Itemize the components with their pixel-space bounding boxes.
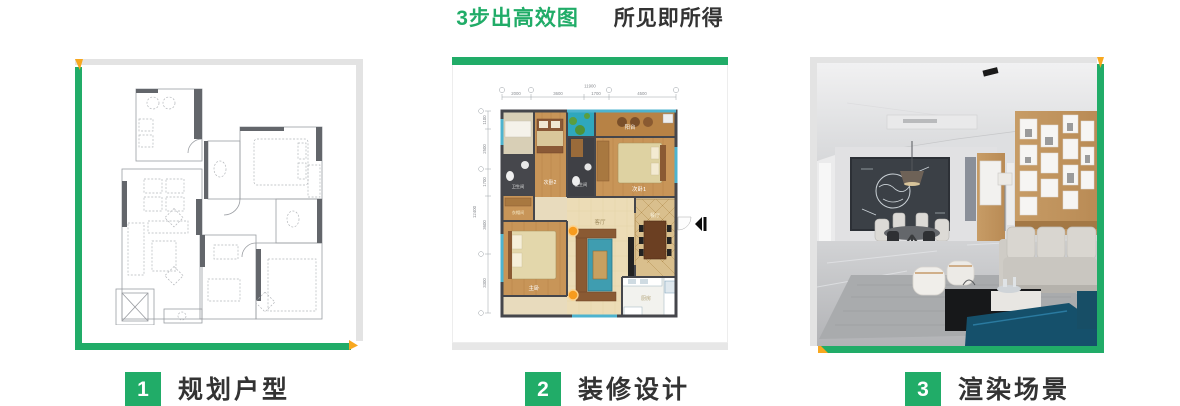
step3-label-row: 3 渲染场景 — [905, 372, 1070, 406]
step1-card-floorplan-sketch — [75, 59, 363, 350]
label-cloakroom: 衣帽间 — [512, 209, 525, 216]
svg-text:1700: 1700 — [591, 91, 601, 96]
card3-left-border — [810, 57, 817, 346]
title-highlight: 3步出高效图 — [456, 7, 579, 30]
svg-text:1700: 1700 — [482, 177, 487, 187]
card1-corner-accent-bottomright — [349, 340, 358, 350]
svg-text:3600: 3600 — [482, 220, 487, 230]
dim-top-total: 11900 — [584, 84, 596, 89]
label-master-bedroom: 主卧 — [528, 284, 540, 292]
photo-shelving-unit — [1015, 111, 1097, 235]
entrance-arrow-icon — [678, 217, 708, 231]
step1-label-row: 1 规划户型 — [125, 372, 290, 406]
label-balcony: 阳台 — [624, 123, 636, 131]
svg-text:1100: 1100 — [482, 115, 487, 125]
svg-text:2500: 2500 — [482, 144, 487, 154]
card1-right-border — [356, 59, 363, 341]
label-living-room: 客厅 — [594, 218, 606, 226]
step3-label: 渲染场景 — [958, 372, 1070, 406]
card3-right-green-border — [1097, 64, 1104, 353]
card1-bottom-green-border — [75, 343, 351, 350]
colored-floorplan-image: 11900 2000 3600 1700 4500 12400 1100 250… — [472, 81, 708, 337]
title-rest: 所见即所得 — [614, 7, 724, 30]
label-bathroom-2: 卫生间 — [575, 181, 588, 188]
step1-number-badge: 1 — [125, 372, 161, 406]
cad-floorplan-image — [108, 83, 330, 325]
label-bedroom1: 次卧1 — [632, 185, 646, 193]
label-bedroom2: 次卧2 — [544, 179, 557, 186]
card2-bottom-strip — [452, 343, 728, 350]
step1-label: 规划户型 — [178, 372, 290, 406]
label-kitchen: 厨房 — [641, 295, 651, 302]
svg-text:4500: 4500 — [637, 91, 647, 96]
card2-green-topbar — [452, 57, 728, 65]
dim-left-total: 12400 — [472, 205, 477, 218]
svg-text:3600: 3600 — [553, 91, 563, 96]
cad-walls-thin — [116, 89, 322, 325]
step2-number-badge: 2 — [525, 372, 561, 406]
promo-section: 3步出高效图 所见即所得 — [0, 0, 1180, 406]
svg-text:3300: 3300 — [482, 278, 487, 288]
card1-left-green-border — [75, 67, 82, 350]
step3-number-badge: 3 — [905, 372, 941, 406]
interior-render-photo — [817, 63, 1097, 346]
step3-card-render-photo — [810, 57, 1104, 353]
label-bathroom-1: 卫生间 — [512, 183, 525, 190]
cad-furniture — [128, 97, 320, 320]
step2-card-colored-plan: 11900 2000 3600 1700 4500 12400 1100 250… — [452, 57, 728, 350]
card3-bottom-green-border — [818, 346, 1104, 353]
step2-label: 装修设计 — [578, 372, 690, 406]
svg-text:2000: 2000 — [511, 91, 521, 96]
card1-top-border — [75, 59, 363, 65]
step2-label-row: 2 装修设计 — [525, 372, 690, 406]
page-title: 3步出高效图 所见即所得 — [0, 2, 1180, 32]
label-dining-room: 餐厅 — [650, 212, 660, 219]
